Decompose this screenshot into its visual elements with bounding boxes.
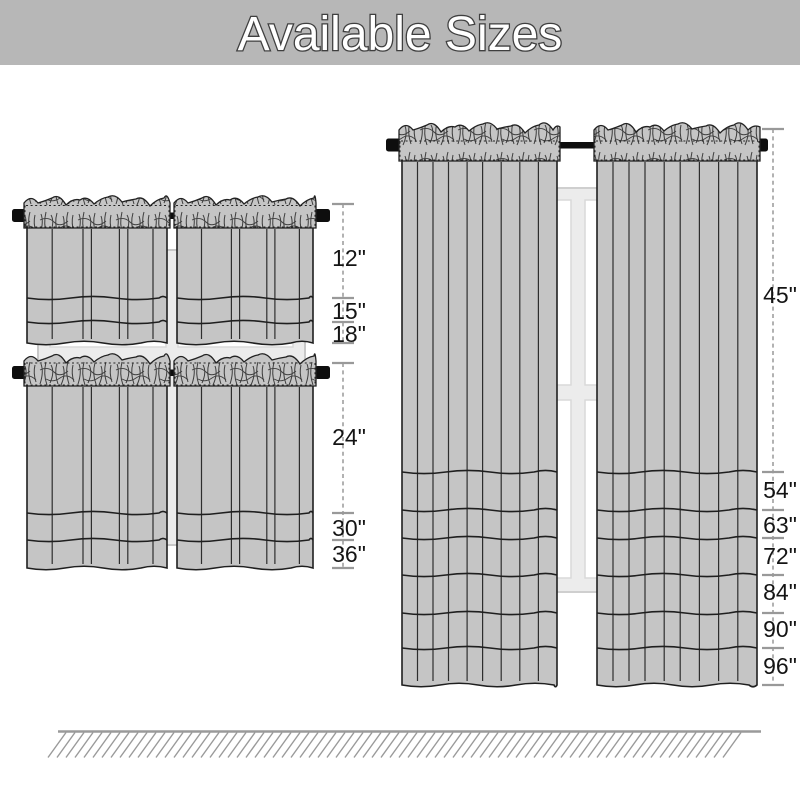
hatch-line xyxy=(507,733,525,758)
long-panel-measure: 45" 54" 63" 72" 84" 90" 96" xyxy=(762,129,797,685)
size-label-96in: 96" xyxy=(763,653,797,679)
hatch-line xyxy=(543,733,561,758)
hatch-line xyxy=(660,733,678,758)
hatch-line xyxy=(309,733,327,758)
hatch-line xyxy=(354,733,372,758)
hatch-line xyxy=(84,733,102,758)
hatch-line xyxy=(336,733,354,758)
hatch-line xyxy=(651,733,669,758)
hatch-line xyxy=(147,733,165,758)
large-tier-measure: 24" 30" 36" xyxy=(332,363,366,568)
hatch-line xyxy=(264,733,282,758)
hatch-line xyxy=(561,733,579,758)
hatch-line xyxy=(552,733,570,758)
hatch-line xyxy=(687,733,705,758)
curtain-panel xyxy=(402,159,557,687)
hatch-line xyxy=(615,733,633,758)
hatch-line xyxy=(48,733,66,758)
hatch-line xyxy=(705,733,723,758)
hatch-line xyxy=(624,733,642,758)
hatch-line xyxy=(408,733,426,758)
hatch-line xyxy=(579,733,597,758)
hatch-line xyxy=(525,733,543,758)
hatch-line xyxy=(372,733,390,758)
size-label-84in: 84" xyxy=(763,579,797,605)
hatch-line xyxy=(156,733,174,758)
hatch-line xyxy=(480,733,498,758)
hatch-line xyxy=(489,733,507,758)
hatch-line xyxy=(426,733,444,758)
page-title: Available Sizes xyxy=(238,8,563,61)
curtain-panel xyxy=(27,226,167,345)
hatch-line xyxy=(273,733,291,758)
hatch-line xyxy=(498,733,516,758)
hatch-line xyxy=(174,733,192,758)
floor xyxy=(48,732,761,758)
hatch-line xyxy=(435,733,453,758)
hatch-line xyxy=(696,733,714,758)
hatch-line xyxy=(165,733,183,758)
size-label-72in: 72" xyxy=(763,543,797,569)
size-diagram: Available Sizes 12" 15" 18" xyxy=(0,0,800,800)
hatch-line xyxy=(327,733,345,758)
size-label-18in: 18" xyxy=(332,321,366,347)
curtain-panel xyxy=(177,226,313,345)
hatch-line xyxy=(66,733,84,758)
hatch-line xyxy=(237,733,255,758)
hatch-line xyxy=(417,733,435,758)
ruffle xyxy=(24,196,170,228)
hatch-line xyxy=(471,733,489,758)
hatch-line xyxy=(453,733,471,758)
size-label-36in: 36" xyxy=(332,541,366,567)
hatch-line xyxy=(714,733,732,758)
curtain-panel xyxy=(597,159,757,687)
hatch-line xyxy=(255,733,273,758)
size-label-30in: 30" xyxy=(332,515,366,541)
hatch-line xyxy=(102,733,120,758)
hatch-line xyxy=(300,733,318,758)
hatch-line xyxy=(363,733,381,758)
hatch-line xyxy=(588,733,606,758)
hatch-line xyxy=(246,733,264,758)
hatch-line xyxy=(192,733,210,758)
hatch-line xyxy=(201,733,219,758)
ruffle xyxy=(399,123,560,161)
ruffle xyxy=(594,123,760,161)
hatch-line xyxy=(669,733,687,758)
size-label-45in: 45" xyxy=(763,282,797,308)
hatch-line xyxy=(678,733,696,758)
size-label-63in: 63" xyxy=(763,512,797,538)
ruffle xyxy=(174,196,316,228)
small-tier-measure: 12" 15" 18" xyxy=(332,204,366,347)
hatch-line xyxy=(57,733,75,758)
hatch-line xyxy=(723,733,741,758)
hatch-line xyxy=(219,733,237,758)
hatch-line xyxy=(570,733,588,758)
size-label-24in: 24" xyxy=(332,424,366,450)
hatch-line xyxy=(642,733,660,758)
hatch-line xyxy=(111,733,129,758)
hatch-line xyxy=(129,733,147,758)
hatch-line xyxy=(120,733,138,758)
hatch-line xyxy=(597,733,615,758)
hatch-line xyxy=(444,733,462,758)
hatch-line xyxy=(138,733,156,758)
hatch-line xyxy=(381,733,399,758)
hatch-line xyxy=(633,733,651,758)
hatch-line xyxy=(228,733,246,758)
hatch-line xyxy=(318,733,336,758)
hatch-line xyxy=(345,733,363,758)
hatch-line xyxy=(516,733,534,758)
size-label-54in: 54" xyxy=(763,477,797,503)
hatch-line xyxy=(75,733,93,758)
rod-finial-right xyxy=(315,209,330,222)
size-label-90in: 90" xyxy=(763,616,797,642)
hatch-line xyxy=(462,733,480,758)
hatch-line xyxy=(534,733,552,758)
rod-finial-right xyxy=(315,366,330,379)
hatch-line xyxy=(606,733,624,758)
hatch-line xyxy=(291,733,309,758)
hatch-line xyxy=(93,733,111,758)
hatch-line xyxy=(282,733,300,758)
hatch-line xyxy=(183,733,201,758)
hatch-line xyxy=(399,733,417,758)
hatch-line xyxy=(390,733,408,758)
size-label-12in: 12" xyxy=(332,245,366,271)
hatch-line xyxy=(210,733,228,758)
